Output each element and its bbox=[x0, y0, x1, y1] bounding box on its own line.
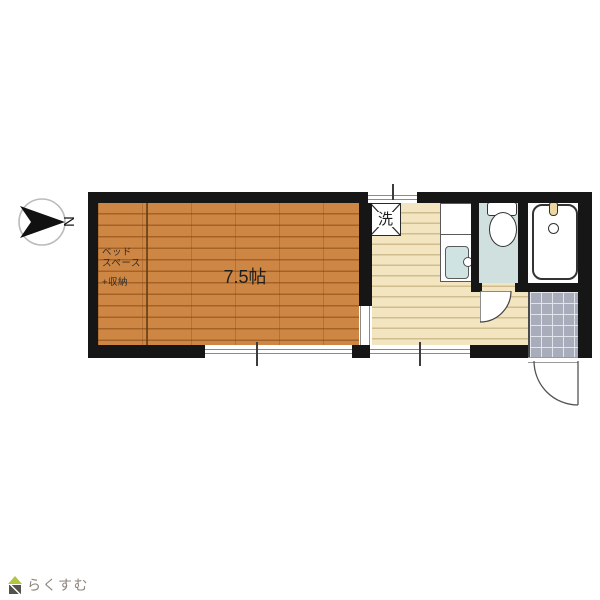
toilet-icon bbox=[489, 212, 517, 247]
site-logo: らくすむ bbox=[8, 576, 89, 594]
bed-space-divider bbox=[146, 203, 148, 345]
bed-space-label-3: +収納 bbox=[102, 278, 128, 288]
wall-left bbox=[88, 192, 98, 358]
wall-toilet-left bbox=[471, 203, 479, 292]
window-tick-kitchen bbox=[419, 342, 421, 366]
wall-top bbox=[88, 192, 592, 203]
north-label: N bbox=[60, 216, 77, 227]
toilet-door-arc bbox=[480, 291, 513, 324]
window-tick-main bbox=[256, 342, 258, 366]
wall-toilet-bath-divider bbox=[518, 203, 528, 292]
washing-machine-symbol: 洗 bbox=[370, 203, 401, 236]
bed-space-label-2: スペース bbox=[102, 259, 141, 269]
bath-faucet-icon bbox=[549, 201, 558, 216]
wall-bath-bottom bbox=[515, 283, 592, 292]
logo-text: らくすむ bbox=[27, 578, 89, 594]
window-tick-top bbox=[392, 184, 394, 200]
partition-opening bbox=[360, 306, 370, 345]
wall-right bbox=[578, 192, 592, 358]
bed-space bbox=[98, 203, 147, 345]
window-bottom-main bbox=[205, 345, 352, 358]
main-room-area-label: 7.5帖 bbox=[200, 263, 290, 289]
entrance-door-arc bbox=[533, 361, 580, 408]
bath-drain-icon bbox=[548, 223, 559, 234]
bed-space-label-1: ベッド bbox=[102, 248, 132, 258]
house-icon bbox=[8, 576, 22, 594]
wall-partition bbox=[359, 203, 372, 306]
floorplan-canvas: N 7.5帖 ベッド スペース +収納 洗 bbox=[0, 0, 600, 600]
washer-label: 洗 bbox=[377, 212, 394, 227]
entrance-tile bbox=[528, 292, 580, 357]
